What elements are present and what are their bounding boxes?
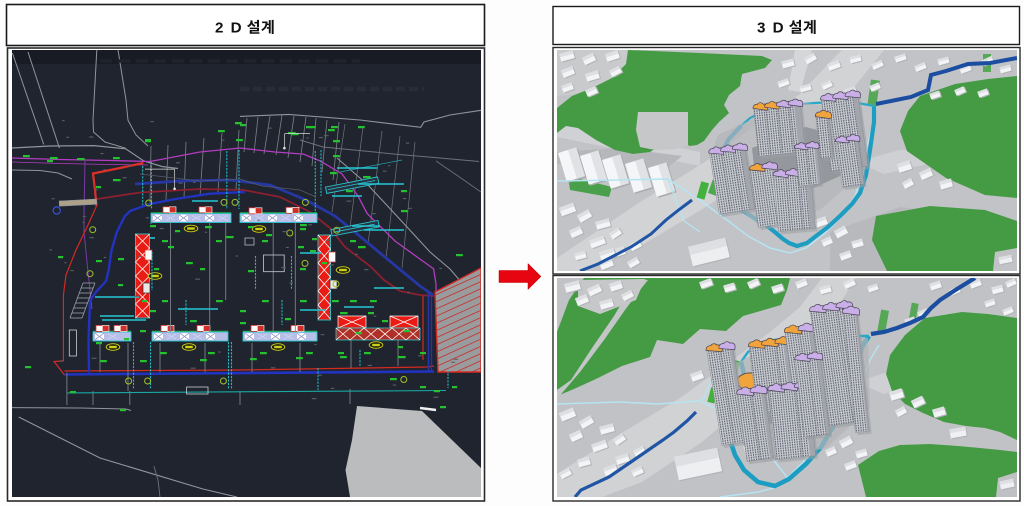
svg-text:3 D: 3 D xyxy=(757,20,785,37)
svg-text:2 D: 2 D xyxy=(215,20,243,37)
